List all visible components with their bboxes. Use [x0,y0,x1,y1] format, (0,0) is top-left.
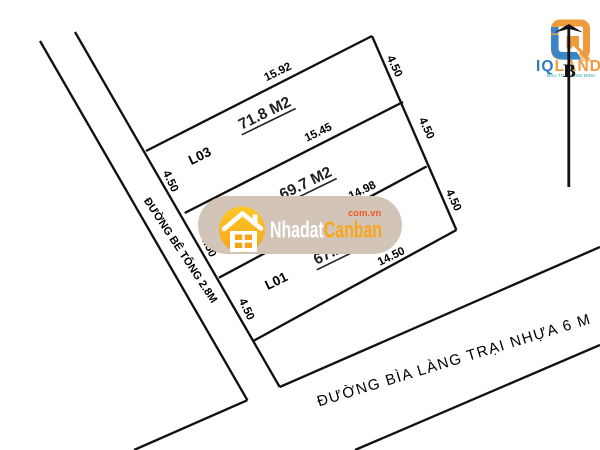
svg-text:B: B [563,61,576,82]
svg-text:NhadatCanban: NhadatCanban [270,217,382,243]
svg-text:com.vn: com.vn [348,208,381,219]
